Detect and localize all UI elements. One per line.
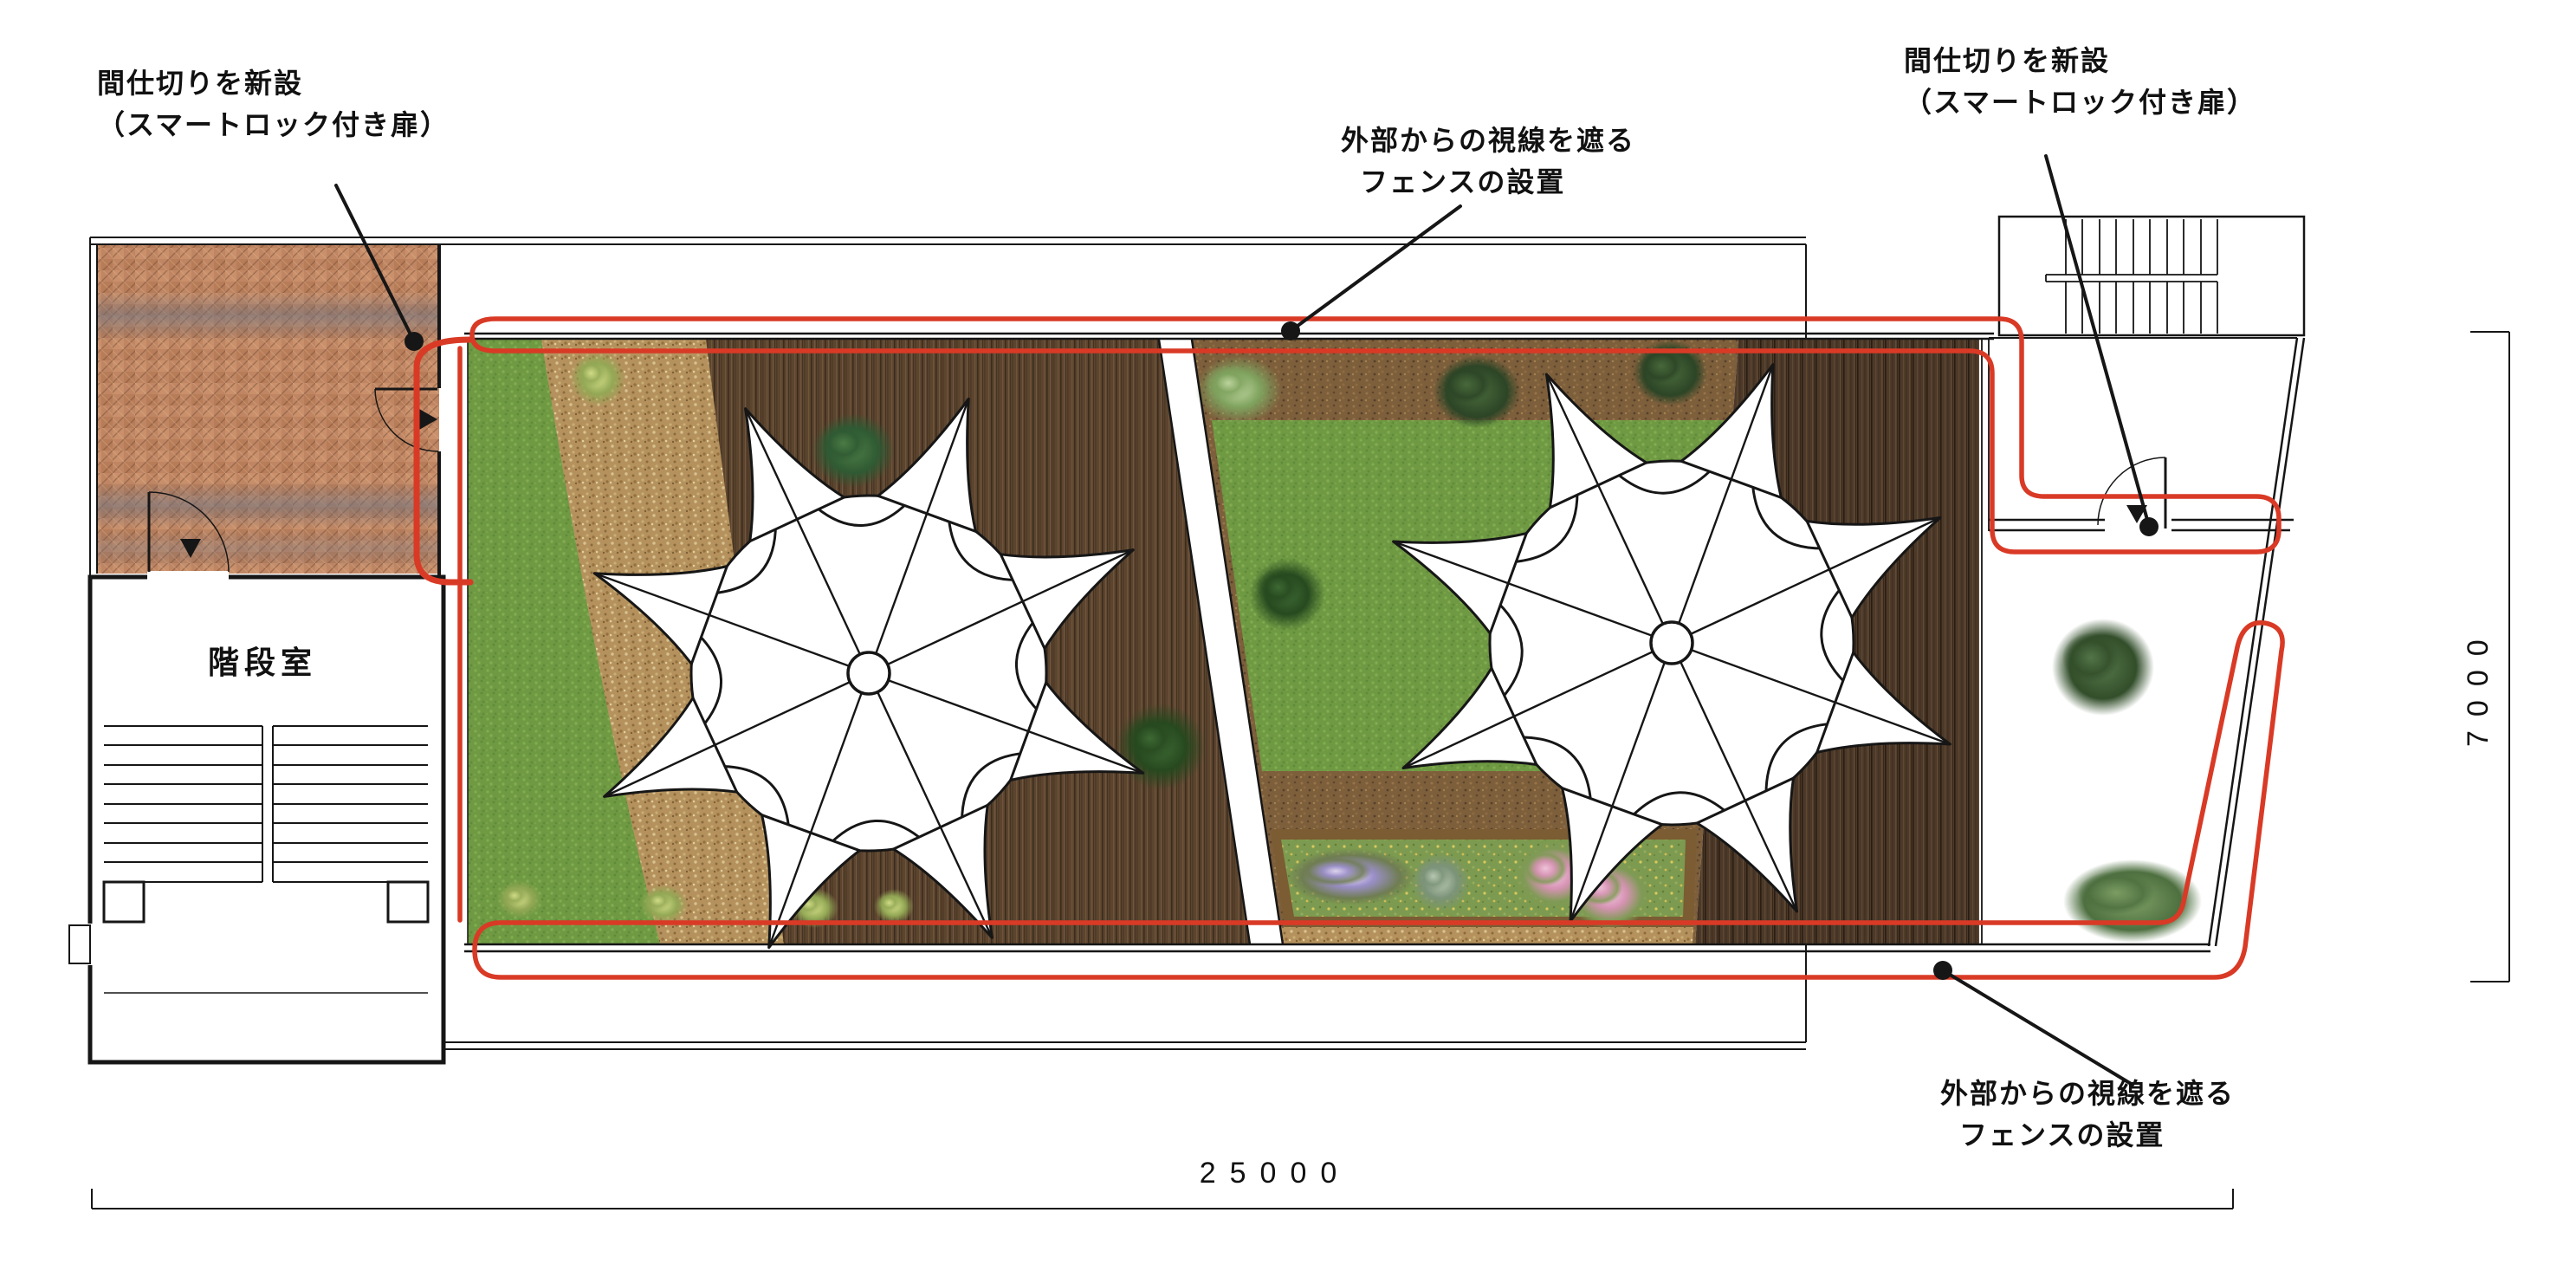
leader-fence-bottom xyxy=(1943,970,2133,1085)
leader-dot-icon xyxy=(1281,321,1300,340)
leader-fence-top xyxy=(1291,206,1460,331)
leader-dot-icon xyxy=(1933,961,1952,980)
canopy-hub-icon xyxy=(848,652,890,694)
leader-partition-top-right xyxy=(2046,156,2149,526)
leader-dot-icon xyxy=(405,332,424,351)
annotation-line: 外部からの視線を遮る xyxy=(1341,120,1635,161)
annotation-line: 間仕切りを新設 xyxy=(1904,40,2256,81)
annotation-line: フェンスの設置 xyxy=(1940,1114,2235,1156)
garden-top-wall xyxy=(464,334,1994,339)
annotation-line: フェンスの設置 xyxy=(1341,161,1635,203)
annotation-line: 外部からの視線を遮る xyxy=(1940,1073,2235,1114)
site-plan-canvas: 間仕切りを新設 （スマートロック付き扉） 外部からの視線を遮る フェンスの設置 … xyxy=(0,0,2576,1284)
annotation-fence-top: 外部からの視線を遮る フェンスの設置 xyxy=(1341,120,1635,203)
leader-dot-icon xyxy=(2139,517,2159,536)
annotation-partition-top-left: 間仕切りを新設 （スマートロック付き扉） xyxy=(97,62,450,146)
dimension-height-value: 7000 xyxy=(2462,626,2495,747)
garden-bottom-wall xyxy=(464,944,2210,951)
dimension-line-width xyxy=(92,1189,2233,1209)
annotation-fence-bottom: 外部からの視線を遮る フェンスの設置 xyxy=(1940,1073,2235,1156)
stairwell-label: 階段室 xyxy=(208,638,317,683)
annotation-line: （スマートロック付き扉） xyxy=(1904,81,2256,123)
annotation-line: （スマートロック付き扉） xyxy=(97,104,450,146)
annotation-line: 間仕切りを新設 xyxy=(97,62,450,104)
dimension-width-value: 25000 xyxy=(1093,1157,1457,1190)
canopy-hub-icon xyxy=(1651,622,1693,664)
annotation-partition-top-right: 間仕切りを新設 （スマートロック付き扉） xyxy=(1904,40,2256,123)
upper-staircase xyxy=(1999,217,2304,335)
